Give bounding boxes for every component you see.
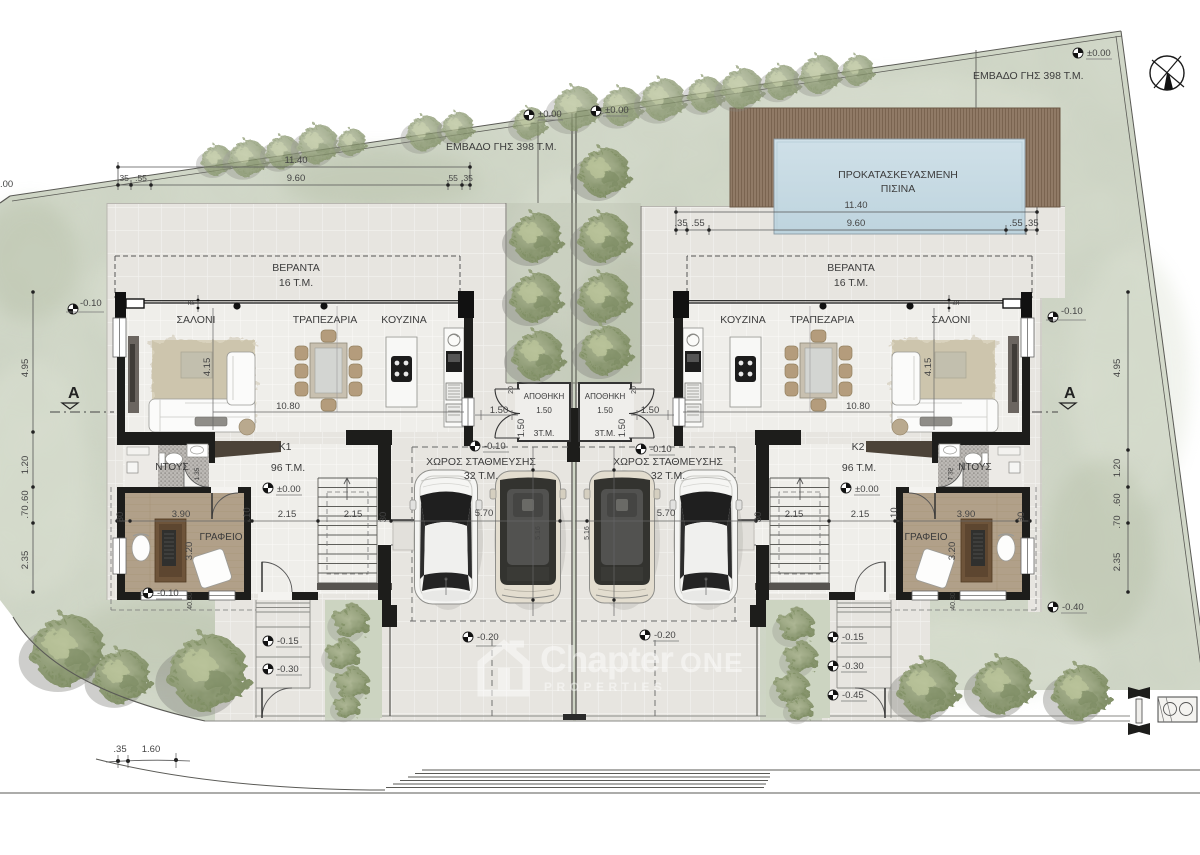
svg-text:.10: .10	[242, 507, 253, 520]
svg-text:ΣΑΛΟΝΙ: ΣΑΛΟΝΙ	[177, 314, 216, 326]
svg-text:1.50: 1.50	[641, 405, 660, 416]
svg-text:3Τ.Μ.: 3Τ.Μ.	[595, 428, 616, 438]
svg-text:30: 30	[1016, 512, 1027, 523]
svg-text:PROPERTIES: PROPERTIES	[544, 680, 666, 694]
svg-text:.55: .55	[135, 173, 147, 183]
svg-text:±0.00: ±0.00	[1087, 48, 1111, 59]
svg-text:1.35: 1.35	[194, 467, 201, 480]
svg-text:-0.20: -0.20	[477, 632, 499, 643]
svg-text:A: A	[1064, 385, 1076, 402]
svg-text:1.50: 1.50	[536, 406, 552, 415]
svg-text:10.80: 10.80	[846, 401, 870, 412]
svg-text:3.90: 3.90	[172, 509, 191, 520]
svg-text:1.50: 1.50	[490, 405, 509, 416]
svg-text:32 Τ.Μ.: 32 Τ.Μ.	[651, 470, 685, 482]
svg-text:3.20: 3.20	[184, 542, 195, 561]
svg-text:2.15: 2.15	[344, 509, 363, 520]
svg-text:±0.00: ±0.00	[605, 105, 629, 116]
svg-text:-0.10: -0.10	[80, 298, 102, 309]
svg-text:3Τ.Μ.: 3Τ.Μ.	[534, 428, 555, 438]
svg-text:5.70: 5.70	[475, 508, 494, 519]
svg-text:ΒΕΡΑΝΤΑ: ΒΕΡΑΝΤΑ	[272, 262, 319, 274]
svg-text:ΒΕΡΑΝΤΑ: ΒΕΡΑΝΤΑ	[827, 262, 874, 274]
svg-text:9.60: 9.60	[847, 218, 866, 229]
svg-text:.55: .55	[1009, 218, 1022, 229]
svg-text:-0.30: -0.30	[842, 661, 864, 672]
svg-text:4.15: 4.15	[923, 358, 934, 377]
svg-text:.70: .70	[1112, 515, 1123, 528]
svg-text:2.35: 2.35	[1112, 553, 1123, 572]
svg-text:11.40: 11.40	[284, 155, 307, 166]
svg-text:ΤΡΑΠΕΖΑΡΙΑ: ΤΡΑΠΕΖΑΡΙΑ	[790, 314, 855, 326]
svg-text:.00: .00	[0, 179, 13, 190]
svg-text:10.80: 10.80	[276, 401, 300, 412]
svg-text:4.95: 4.95	[1112, 359, 1123, 378]
svg-text:1.60: 1.60	[142, 744, 161, 755]
svg-text:2.15: 2.15	[851, 509, 870, 520]
svg-text:4.95: 4.95	[20, 359, 31, 378]
svg-text:4.15: 4.15	[202, 358, 213, 377]
svg-text:.60: .60	[20, 490, 31, 503]
svg-text:.35: .35	[461, 173, 473, 183]
svg-text:.60: .60	[1112, 493, 1123, 506]
svg-text:30: 30	[753, 512, 764, 523]
svg-text:ΕΜΒΑΔΟ ΓΗΣ 398 Τ.Μ.: ΕΜΒΑΔΟ ΓΗΣ 398 Τ.Μ.	[446, 141, 557, 153]
svg-text:K1: K1	[279, 441, 292, 453]
svg-text:5.16: 5.16	[535, 526, 542, 540]
svg-text:ΧΩΡΟΣ ΣΤΑΘΜΕΥΣΗΣ: ΧΩΡΟΣ ΣΤΑΘΜΕΥΣΗΣ	[613, 456, 723, 468]
svg-text:ΓΡΑΦΕΙΟ: ΓΡΑΦΕΙΟ	[199, 532, 242, 543]
svg-text:20: 20	[631, 386, 638, 394]
svg-text:Κλ: Κλ	[188, 301, 195, 307]
svg-text:-0.10: -0.10	[157, 588, 179, 599]
svg-text:-0.30: -0.30	[277, 664, 299, 675]
svg-text:.35: .35	[113, 744, 126, 755]
svg-text:9.60: 9.60	[287, 173, 306, 184]
svg-text:.70: .70	[20, 505, 31, 518]
svg-text:.35: .35	[117, 173, 129, 183]
svg-text:.10: .10	[889, 507, 900, 520]
svg-text:-0.15: -0.15	[277, 636, 299, 647]
svg-text:±0.00: ±0.00	[277, 484, 301, 495]
svg-text:1.20: 1.20	[1112, 459, 1123, 478]
svg-text:1.20: 1.20	[20, 456, 31, 475]
svg-text:16 Τ.Μ.: 16 Τ.Μ.	[279, 277, 313, 289]
svg-text:-0.40: -0.40	[1062, 602, 1084, 613]
svg-text:.55: .55	[446, 173, 458, 183]
svg-text:ΝΤΟΥΣ: ΝΤΟΥΣ	[155, 462, 188, 473]
svg-text:ΚΟΥΖΙΝΑ: ΚΟΥΖΙΝΑ	[720, 314, 765, 326]
svg-text:30: 30	[115, 512, 126, 523]
svg-text:1.50: 1.50	[597, 406, 613, 415]
svg-text:2.15: 2.15	[785, 509, 804, 520]
svg-text:32 Τ.Μ.: 32 Τ.Μ.	[464, 470, 498, 482]
svg-text:ΠΙΣΙΝΑ: ΠΙΣΙΝΑ	[881, 183, 916, 195]
svg-text:-0.10: -0.10	[1061, 306, 1083, 317]
svg-text:40.30: 40.30	[950, 592, 957, 610]
svg-text:.35: .35	[674, 218, 687, 229]
svg-text:±0.00: ±0.00	[855, 484, 879, 495]
svg-text:ΕΜΒΑΔΟ ΓΗΣ 398 Τ.Μ.: ΕΜΒΑΔΟ ΓΗΣ 398 Τ.Μ.	[973, 70, 1084, 82]
svg-text:1.50: 1.50	[617, 419, 628, 438]
svg-text:ΝΤΟΥΣ: ΝΤΟΥΣ	[958, 462, 991, 473]
svg-text:16 Τ.Μ.: 16 Τ.Μ.	[834, 277, 868, 289]
svg-text:ΠΡΟΚΑΤΑΣΚΕΥΑΣΜΕΝΗ: ΠΡΟΚΑΤΑΣΚΕΥΑΣΜΕΝΗ	[838, 169, 958, 181]
svg-text:±0.00: ±0.00	[538, 109, 562, 120]
svg-text:Chapter: Chapter	[540, 639, 673, 680]
svg-text:ΓΡΑΦΕΙΟ: ΓΡΑΦΕΙΟ	[904, 532, 947, 543]
svg-text:.55: .55	[691, 218, 704, 229]
svg-text:2.15: 2.15	[278, 509, 297, 520]
svg-text:ΑΠΟΘΗΚΗ: ΑΠΟΘΗΚΗ	[524, 392, 565, 401]
svg-text:A: A	[68, 385, 80, 402]
svg-text:96 Τ.Μ.: 96 Τ.Μ.	[842, 462, 876, 474]
svg-text:2.35: 2.35	[20, 551, 31, 570]
svg-text:-0.45: -0.45	[842, 690, 864, 701]
svg-text:-0.15: -0.15	[842, 632, 864, 643]
svg-text:5.70: 5.70	[657, 508, 676, 519]
svg-text:K2: K2	[852, 441, 865, 453]
svg-text:1.50: 1.50	[516, 419, 527, 438]
svg-text:-0.10: -0.10	[484, 441, 506, 452]
svg-text:ΤΡΑΠΕΖΑΡΙΑ: ΤΡΑΠΕΖΑΡΙΑ	[293, 314, 358, 326]
svg-text:5.16: 5.16	[584, 526, 591, 540]
svg-text:3.20: 3.20	[947, 542, 958, 561]
svg-text:30: 30	[378, 512, 389, 523]
svg-text:ONE: ONE	[680, 647, 744, 678]
svg-text:ΚΟΥΖΙΝΑ: ΚΟΥΖΙΝΑ	[381, 314, 426, 326]
svg-text:ΑΠΟΘΗΚΗ: ΑΠΟΘΗΚΗ	[585, 392, 626, 401]
svg-text:ΣΑΛΟΝΙ: ΣΑΛΟΝΙ	[932, 314, 971, 326]
svg-text:40.30: 40.30	[187, 592, 194, 610]
svg-text:20: 20	[508, 386, 515, 394]
svg-text:.35: .35	[1025, 218, 1038, 229]
svg-text:3.90: 3.90	[957, 509, 976, 520]
svg-text:96 Τ.Μ.: 96 Τ.Μ.	[271, 462, 305, 474]
svg-text:11.40: 11.40	[844, 200, 867, 211]
svg-text:ΧΩΡΟΣ ΣΤΑΘΜΕΥΣΗΣ: ΧΩΡΟΣ ΣΤΑΘΜΕΥΣΗΣ	[426, 456, 536, 468]
svg-text:-0.10: -0.10	[650, 444, 672, 455]
